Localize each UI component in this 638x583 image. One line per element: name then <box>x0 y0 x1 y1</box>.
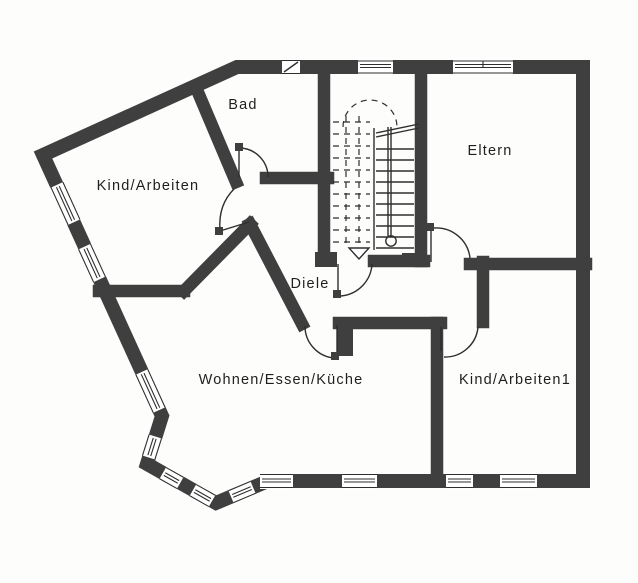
window-bad <box>282 59 300 75</box>
door-stairwell <box>333 264 372 298</box>
label-bad: Bad <box>228 97 257 113</box>
wall-diele-wohnen <box>250 224 302 324</box>
stair-solid-treads <box>374 124 419 250</box>
stair-dashed-arc <box>343 100 397 127</box>
window-kind-arbeiten-1 <box>50 182 82 226</box>
stair-dashed-treads <box>333 116 370 248</box>
window-kind1-2 <box>500 473 537 489</box>
staircase <box>333 100 419 259</box>
label-kind-arbeiten1: Kind/Arbeiten1 <box>459 372 571 388</box>
wall-pillar <box>337 317 353 356</box>
door-eltern <box>426 223 470 262</box>
floor-plan-page: Kind/Arbeiten Bad Eltern Diele Wohnen/Es… <box>0 0 638 583</box>
floor-plan-drawing: Kind/Arbeiten Bad Eltern Diele Wohnen/Es… <box>0 0 638 583</box>
door-wohnen <box>305 325 339 360</box>
label-eltern: Eltern <box>467 143 512 159</box>
stair-handrail <box>386 127 396 246</box>
label-wohnen-essen-kueche: Wohnen/Essen/Küche <box>199 372 364 388</box>
stairs-down-arrow-icon <box>349 248 369 259</box>
window-kind-arbeiten-2 <box>77 243 106 282</box>
window-bay-1 <box>141 434 163 460</box>
window-wohnen-left <box>135 369 167 414</box>
window-kind1-1 <box>446 473 473 489</box>
interior-walls <box>99 70 586 480</box>
label-kind-arbeiten: Kind/Arbeiten <box>97 178 200 194</box>
window-wohnen-2 <box>342 473 377 489</box>
wall-stair-right-foot <box>402 253 422 267</box>
window-eltern <box>453 59 513 75</box>
label-diele: Diele <box>290 276 329 292</box>
window-stairwell <box>358 59 393 75</box>
wall-stair-left-foot <box>315 252 337 267</box>
window-wohnen-1 <box>260 473 293 489</box>
door-kind-arbeiten1 <box>435 327 478 359</box>
